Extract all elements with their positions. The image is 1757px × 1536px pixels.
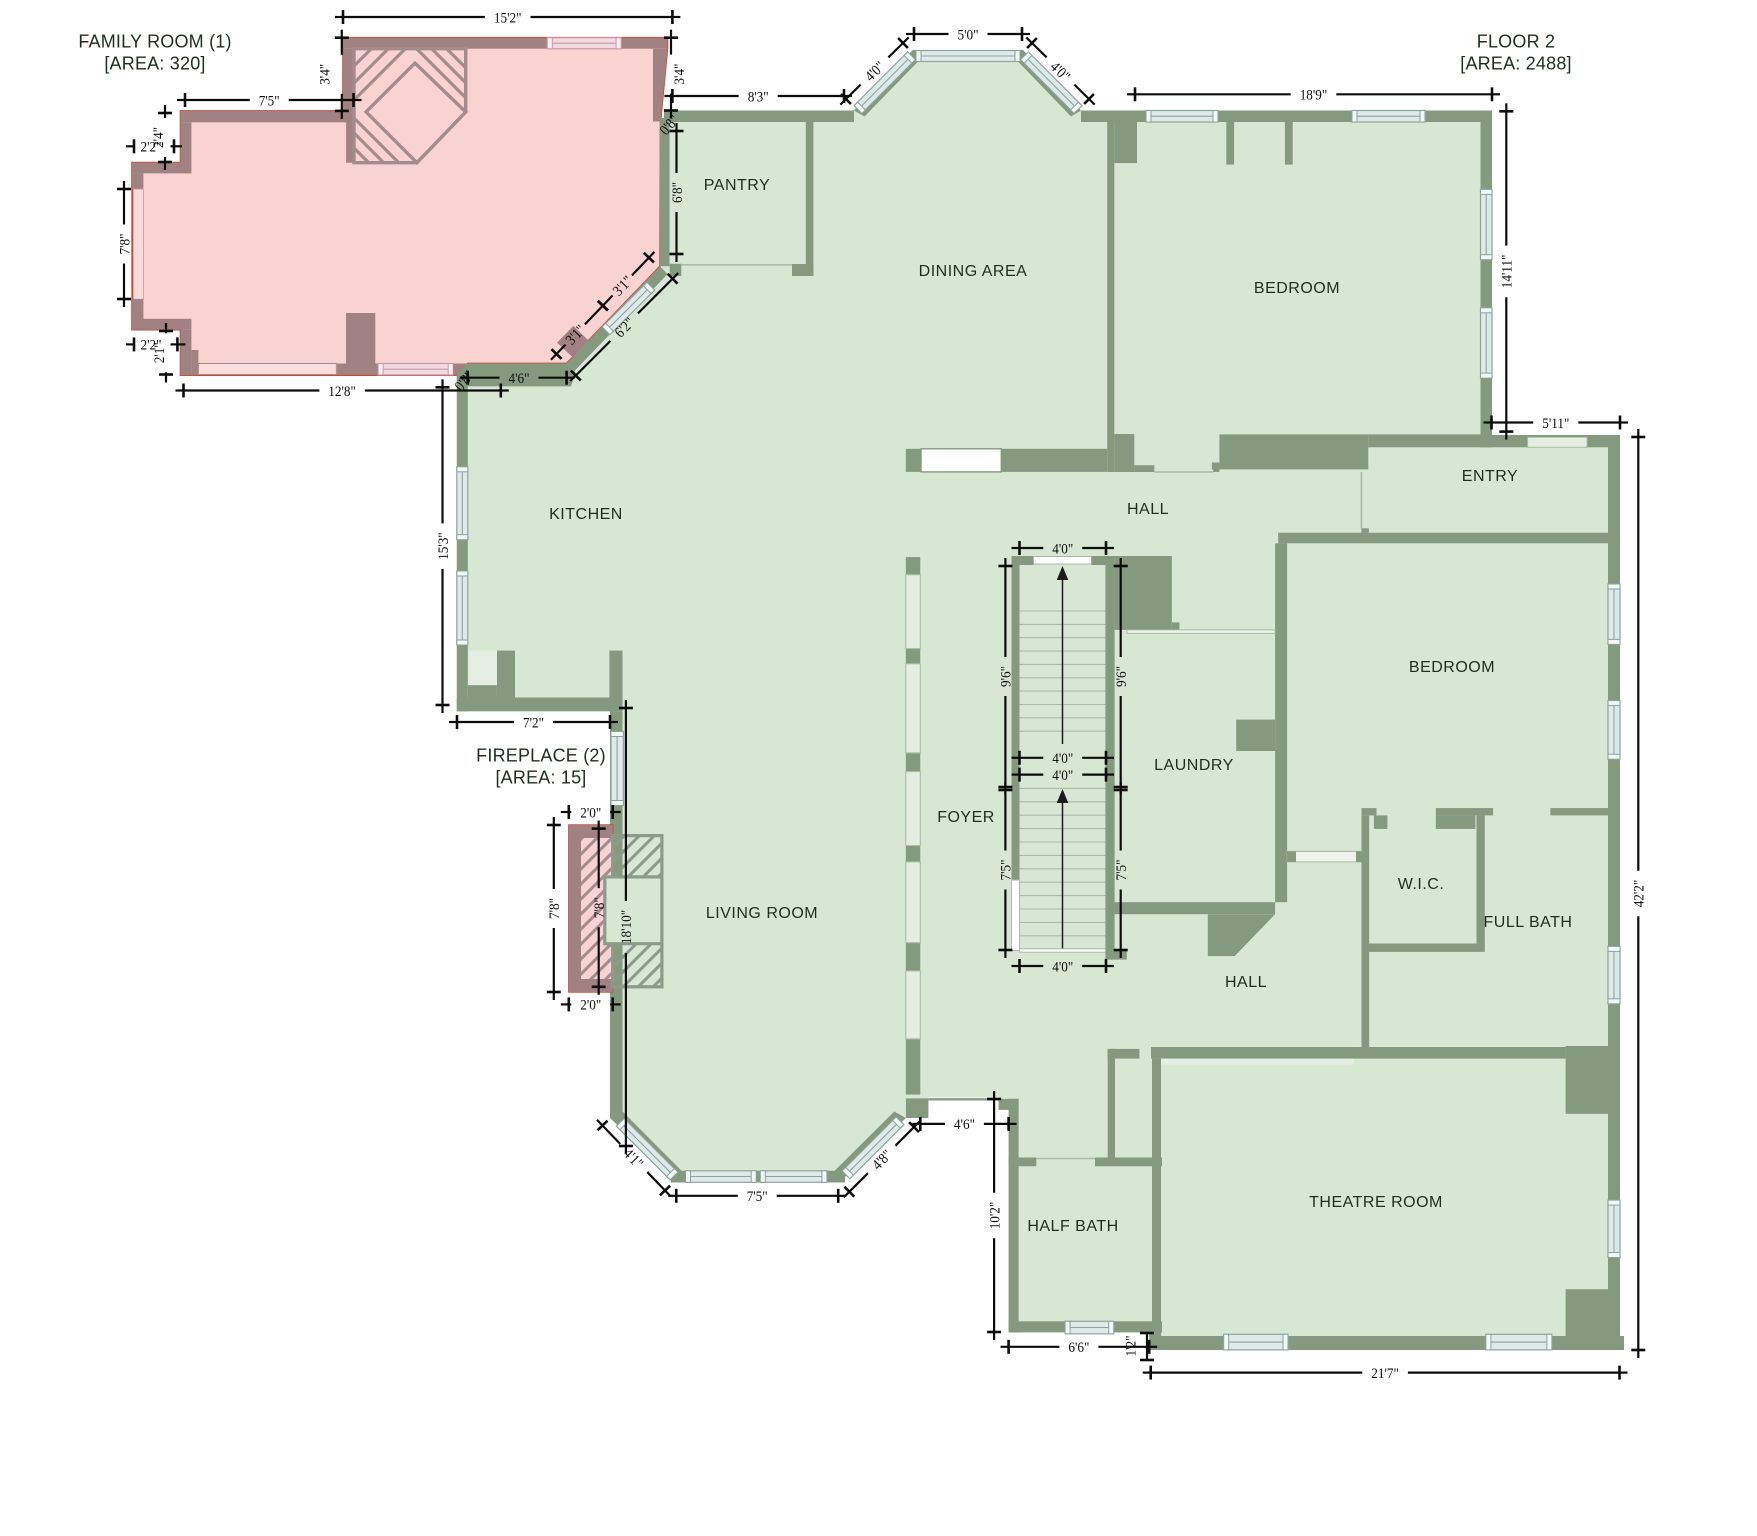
svg-text:BEDROOM: BEDROOM [1409,659,1495,676]
svg-text:21'7": 21'7" [1371,1366,1399,1382]
svg-text:15'3": 15'3" [436,532,452,560]
svg-text:9'6": 9'6" [999,666,1015,687]
svg-text:12'8": 12'8" [328,384,356,400]
svg-text:FOYER: FOYER [937,809,995,826]
svg-text:4'6": 4'6" [509,371,530,387]
svg-text:14'11": 14'11" [1500,255,1516,289]
svg-text:18'9": 18'9" [1300,88,1328,104]
svg-text:2'0": 2'0" [580,998,601,1014]
svg-text:7'5": 7'5" [999,860,1015,881]
svg-text:[AREA: 320]: [AREA: 320] [104,54,205,74]
svg-text:7'5": 7'5" [259,93,280,109]
svg-text:5'0": 5'0" [958,27,979,43]
svg-text:7'2": 7'2" [523,715,544,731]
svg-text:THEATRE ROOM: THEATRE ROOM [1309,1194,1443,1211]
svg-text:7'5": 7'5" [1114,860,1130,881]
svg-text:2'0": 2'0" [580,805,601,821]
svg-text:10'2": 10'2" [987,1202,1003,1230]
svg-text:9'6": 9'6" [1114,666,1130,687]
svg-text:15'2": 15'2" [494,10,522,26]
svg-text:7'5": 7'5" [747,1189,768,1205]
svg-text:LAUNDRY: LAUNDRY [1154,757,1234,774]
svg-text:6'6": 6'6" [1068,1340,1089,1356]
svg-text:ENTRY: ENTRY [1462,468,1518,485]
svg-text:2'2": 2'2" [141,140,162,156]
svg-text:4'6": 4'6" [954,1117,975,1133]
svg-text:4'0": 4'0" [1052,541,1073,557]
svg-text:[AREA: 15]: [AREA: 15] [495,768,586,788]
svg-text:3'4": 3'4" [317,64,333,85]
svg-text:HALL: HALL [1225,974,1267,991]
svg-text:HALF BATH: HALF BATH [1027,1218,1118,1235]
svg-text:KITCHEN: KITCHEN [549,506,623,523]
svg-text:7'8": 7'8" [592,897,608,918]
svg-text:4'0": 4'0" [1052,959,1073,975]
svg-text:18'10": 18'10" [619,910,635,944]
svg-text:LIVING ROOM: LIVING ROOM [706,905,818,922]
svg-text:[AREA: 2488]: [AREA: 2488] [1460,54,1571,74]
svg-text:7'8": 7'8" [547,898,563,919]
svg-text:6'8": 6'8" [670,182,686,203]
svg-text:PANTRY: PANTRY [704,177,770,194]
svg-text:DINING AREA: DINING AREA [919,263,1028,280]
svg-text:FULL BATH: FULL BATH [1484,914,1573,931]
svg-text:2'1": 2'1" [152,342,168,363]
svg-text:42'2": 42'2" [1632,880,1648,908]
svg-text:BEDROOM: BEDROOM [1254,280,1340,297]
svg-text:3'4": 3'4" [672,64,688,85]
svg-text:FIREPLACE (2): FIREPLACE (2) [476,746,606,766]
svg-text:5'11": 5'11" [1542,416,1569,432]
svg-text:HALL: HALL [1127,501,1169,518]
svg-text:4'0": 4'0" [1052,751,1073,767]
svg-text:W.I.C.: W.I.C. [1398,876,1445,893]
svg-text:FAMILY ROOM (1): FAMILY ROOM (1) [78,32,231,52]
svg-text:8'3": 8'3" [748,89,769,105]
svg-text:1'2": 1'2" [1124,1336,1140,1357]
svg-text:4'0": 4'0" [1052,768,1073,784]
svg-text:7'8": 7'8" [117,234,133,255]
svg-text:FLOOR 2: FLOOR 2 [1477,32,1555,52]
